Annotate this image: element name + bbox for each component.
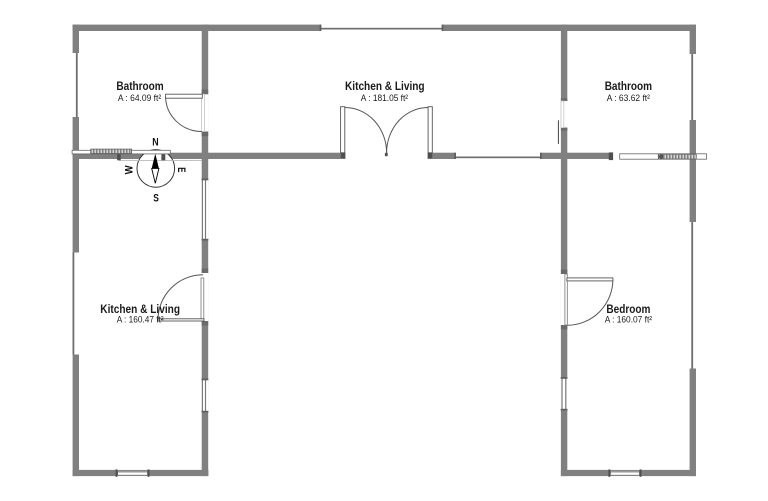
svg-text:Kitchen & Living: Kitchen & Living [345, 80, 425, 93]
svg-text:S: S [153, 192, 159, 204]
svg-text:A : 64.09 ft²: A : 64.09 ft² [118, 93, 161, 103]
svg-text:Bathroom: Bathroom [605, 80, 652, 93]
svg-text:A : 181.05 ft²: A : 181.05 ft² [361, 93, 408, 103]
svg-text:A : 63.62 ft²: A : 63.62 ft² [607, 93, 650, 103]
svg-text:N: N [152, 137, 158, 149]
svg-text:E: E [175, 167, 187, 172]
svg-text:A : 160.47 ft²: A : 160.47 ft² [117, 314, 164, 324]
svg-text:A : 160.07 ft²: A : 160.07 ft² [605, 314, 652, 324]
svg-text:Bathroom: Bathroom [116, 80, 163, 93]
svg-text:W: W [123, 165, 135, 175]
